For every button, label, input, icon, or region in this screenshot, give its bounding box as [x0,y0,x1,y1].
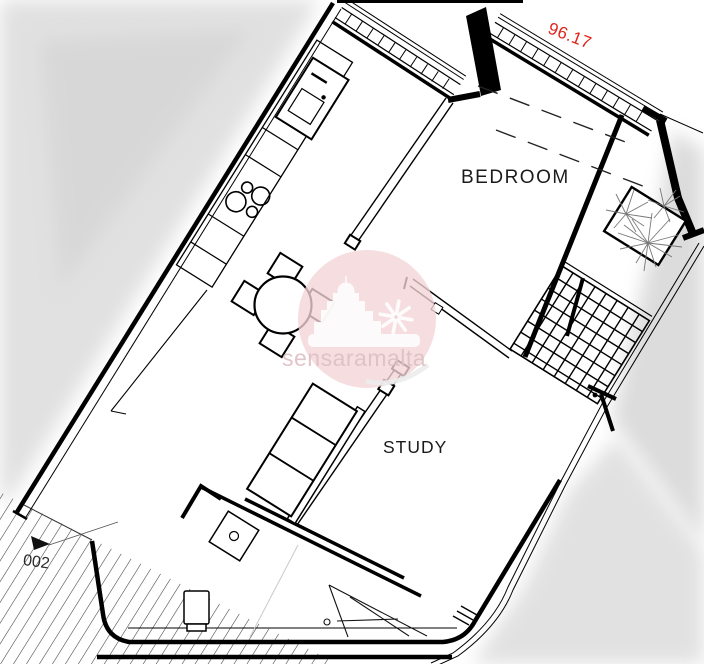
top-edge-bar [337,0,523,3]
room-label-study: STUDY [383,437,447,457]
watermark-text: sensaramalta [282,345,426,371]
washbasin-icon [209,511,259,561]
window-band-right [486,14,703,136]
toilet-icon [184,591,209,631]
room-label-bedroom: BEDROOM [461,167,570,188]
facade-pier [466,7,501,96]
hob-icon [222,174,273,225]
area-label: 96.17 [545,19,594,53]
window-band-left [332,0,466,99]
kitchen-sink-icon [276,58,349,140]
scan-crease-line [250,545,298,637]
floor-plan-page: sensaramalta BEDROOM STUDY 96.17 002 [0,0,704,664]
floor-plan-drawing: sensaramalta BEDROOM STUDY 96.17 002 [0,0,704,664]
watermark: sensaramalta [282,250,436,388]
